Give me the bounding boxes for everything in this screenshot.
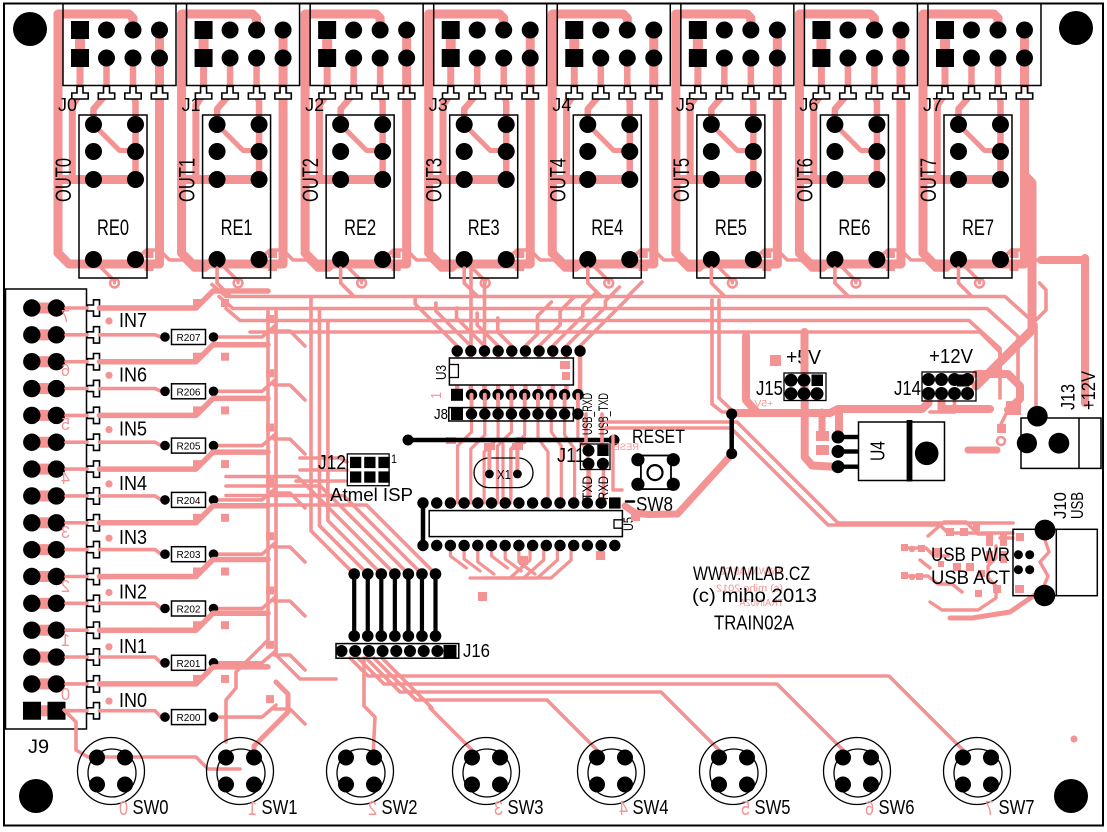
svg-text:R202: R202 [177,605,201,616]
svg-text:Atmel ISP: Atmel ISP [330,485,413,506]
svg-text:J2: J2 [305,94,324,115]
svg-text:1: 1 [61,630,70,650]
svg-text:OUT1: OUT1 [175,158,200,202]
svg-text:2: 2 [61,576,70,596]
svg-text:SW0: SW0 [133,797,169,819]
svg-text:OUT4: OUT4 [545,158,570,202]
svg-text:J15: J15 [756,377,783,400]
svg-text:SW4: SW4 [633,797,669,819]
svg-text:SW7: SW7 [999,797,1035,819]
svg-text:U3: U3 [433,365,450,380]
svg-text:RXD: RXD [596,476,611,500]
svg-text:1: 1 [391,452,397,466]
svg-text:4: 4 [619,797,628,820]
svg-text:USB: USB [1067,492,1087,519]
svg-text:RE0: RE0 [97,215,129,240]
svg-text:SW6: SW6 [879,797,915,819]
svg-text:J7: J7 [923,94,942,115]
svg-text:R206: R206 [177,387,201,398]
svg-text:U4: U4 [868,441,890,461]
svg-text:RE1: RE1 [221,215,253,240]
svg-text:OUT2: OUT2 [298,158,323,202]
svg-text:J9: J9 [28,737,49,758]
svg-text:R203: R203 [177,550,201,561]
svg-text:TXD: TXD [580,476,595,500]
svg-text:J6: J6 [799,94,818,115]
svg-text:X1: X1 [497,467,511,482]
svg-text:RE4: RE4 [591,215,623,240]
svg-text:OUT5: OUT5 [669,158,694,202]
svg-text:RE7: RE7 [962,215,994,240]
svg-text:J3: J3 [429,94,448,115]
svg-text:OUT3: OUT3 [422,158,447,202]
svg-text:RE2: RE2 [344,215,376,240]
svg-text:7: 7 [985,797,994,820]
svg-text:2: 2 [368,797,377,820]
svg-text:OUT6: OUT6 [792,158,817,202]
svg-text:TRAIN02A: TRAIN02A [714,613,795,635]
svg-text:J11: J11 [557,444,585,467]
svg-text:RE6: RE6 [838,215,870,240]
svg-text:6: 6 [865,797,874,820]
svg-text:R207: R207 [177,333,201,344]
svg-text:RE5: RE5 [715,215,747,240]
svg-text:J0: J0 [58,94,77,115]
svg-text:+5V: +5V [754,399,773,409]
svg-text:OUT0: OUT0 [51,158,76,202]
svg-text:J8: J8 [434,406,448,423]
svg-text:SW2: SW2 [382,797,418,819]
svg-text:R200: R200 [177,713,201,724]
svg-text:IN1: IN1 [119,635,147,658]
svg-text:J4: J4 [552,94,571,115]
svg-text:IN2: IN2 [119,581,147,604]
svg-text:IN5: IN5 [119,418,147,441]
svg-text:IN4: IN4 [119,472,147,495]
svg-text:J12: J12 [318,451,346,474]
svg-text:3: 3 [61,522,70,542]
svg-text:0: 0 [119,797,128,820]
svg-text:3: 3 [494,797,503,820]
svg-text:1: 1 [248,797,257,820]
svg-text:+12V: +12V [929,345,973,368]
svg-text:SW1: SW1 [262,797,298,819]
svg-text:USB_RXD: USB_RXD [580,393,595,435]
svg-text:SW5: SW5 [755,797,791,819]
svg-text:IN7: IN7 [119,309,147,332]
svg-text:OUT7: OUT7 [916,158,941,202]
svg-text:WWW.MLAB.CZ: WWW.MLAB.CZ [693,563,810,585]
svg-text:USB PWR: USB PWR [931,545,1010,566]
svg-text:IN3: IN3 [119,526,147,549]
svg-text:J5: J5 [676,94,695,115]
svg-text:J13: J13 [1059,384,1080,410]
svg-text:IN0: IN0 [119,689,147,712]
svg-text:J16: J16 [463,640,490,661]
svg-text:4: 4 [61,468,70,488]
svg-text:J1: J1 [182,94,201,115]
svg-text:R204: R204 [177,496,201,507]
svg-text:R205: R205 [177,442,201,453]
svg-text:0: 0 [61,684,70,704]
svg-text:+12V: +12V [1079,371,1100,410]
svg-text:IN6: IN6 [119,363,147,386]
svg-text:USB ACT: USB ACT [931,568,1010,589]
svg-text:RE3: RE3 [468,215,500,240]
svg-text:J14: J14 [894,377,921,400]
svg-text:SW3: SW3 [508,797,544,819]
svg-text:5: 5 [741,797,750,820]
svg-text:1: 1 [428,392,445,399]
svg-text:(c) miho 2013: (c) miho 2013 [692,585,817,607]
svg-text:R201: R201 [177,659,201,670]
